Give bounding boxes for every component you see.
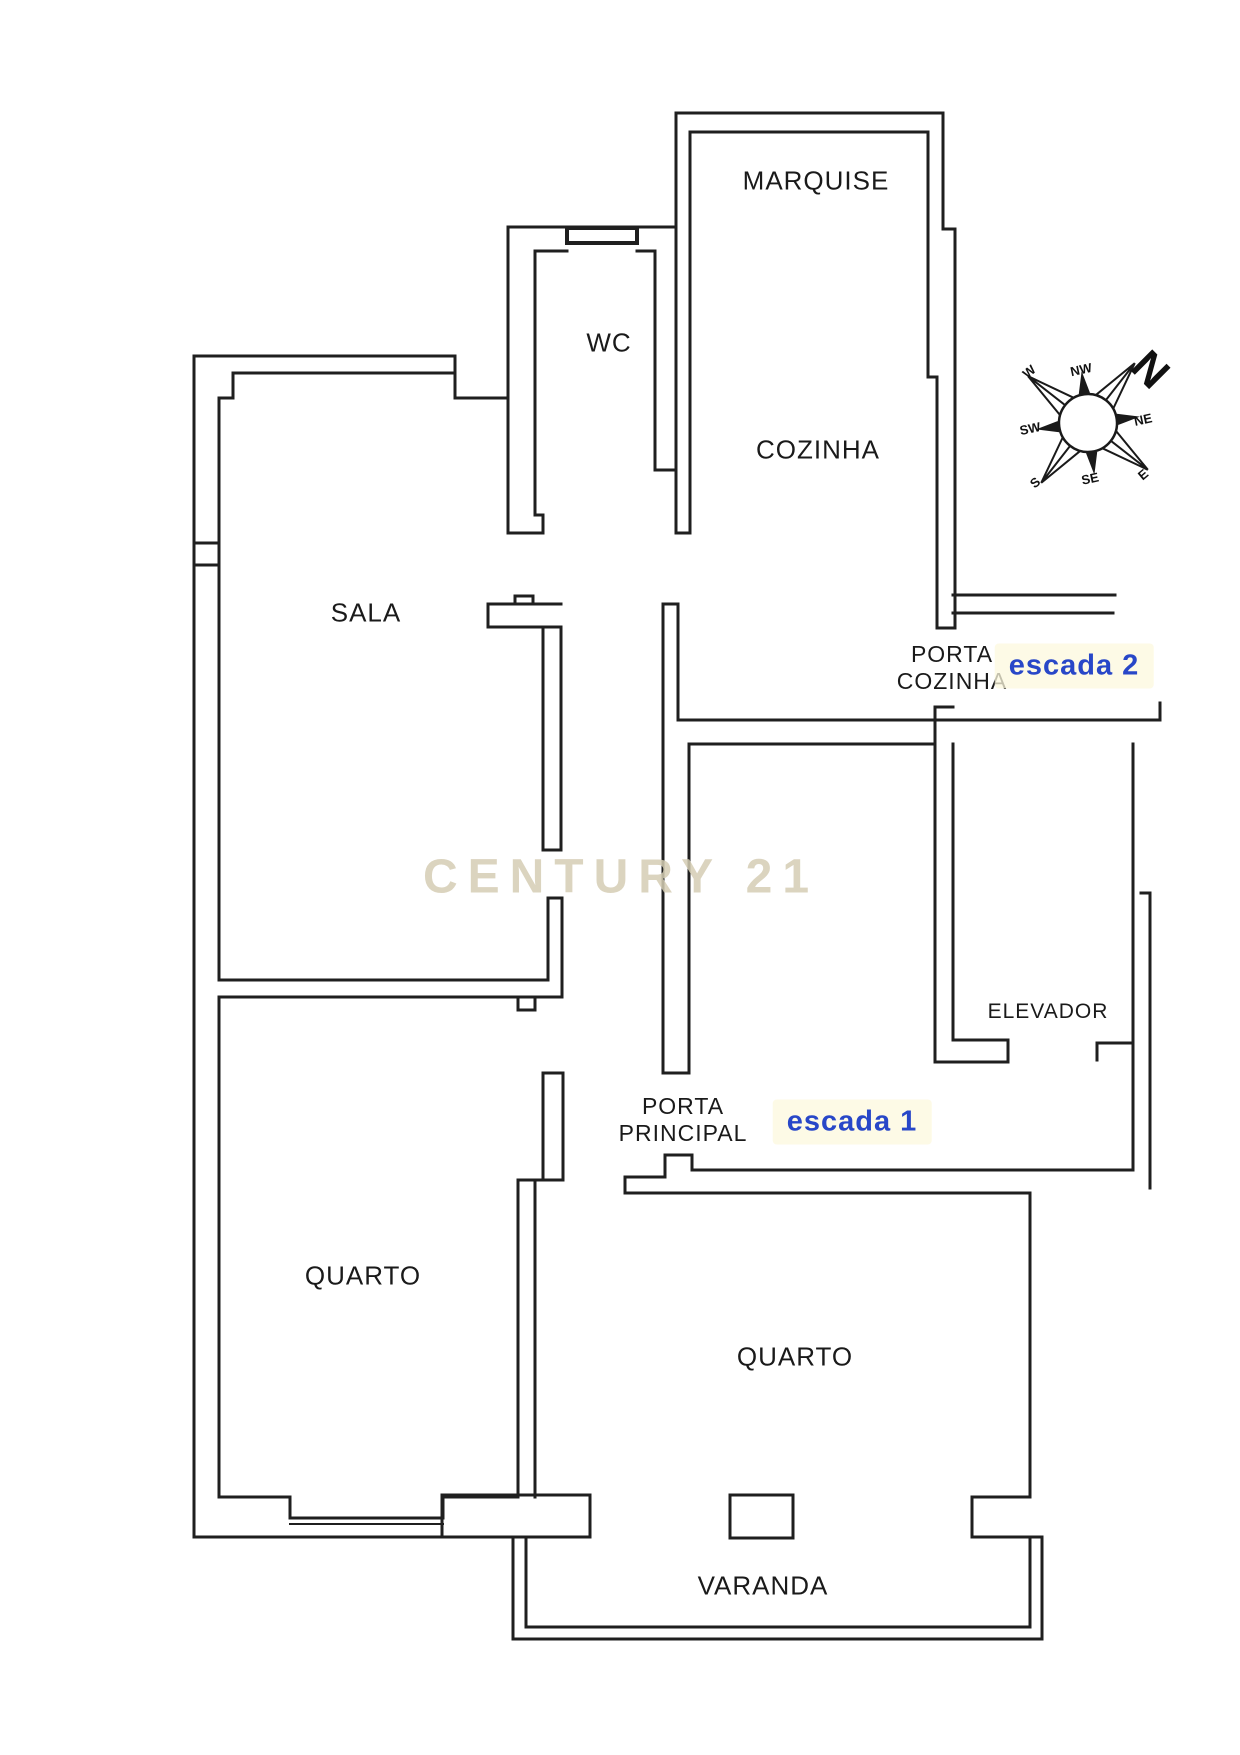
compass-east-label: E — [1135, 466, 1152, 483]
stairs-label-escada2: escada 2 — [995, 644, 1154, 689]
compass-nw-label: NW — [1069, 360, 1094, 379]
compass-circle — [1047, 382, 1128, 463]
compass-west-label: W — [1020, 361, 1040, 381]
door-label-porta-cozinha-line2: COZINHA — [897, 668, 1008, 694]
door-label-porta-cozinha: PORTA COZINHA — [897, 641, 1008, 695]
floorplan-page: N NW W SW S SE E NE CENTURY 21 MARQUISE … — [0, 0, 1240, 1755]
wall-wc — [508, 227, 676, 533]
door-label-porta-principal-line1: PORTA — [642, 1093, 724, 1119]
compass-se-label: SE — [1080, 469, 1100, 487]
varanda-pillar — [730, 1495, 793, 1538]
century21-watermark: CENTURY 21 — [423, 850, 819, 905]
stairs-label-escada1: escada 1 — [773, 1100, 932, 1145]
room-label-quarto-right: QUARTO — [737, 1342, 853, 1373]
room-label-marquise: MARQUISE — [743, 166, 890, 197]
wall-sala — [194, 356, 508, 1537]
wall-elevador — [935, 744, 1150, 1188]
compass-north-label: N — [1122, 341, 1179, 398]
door-label-porta-principal: PORTA PRINCIPAL — [619, 1093, 748, 1147]
wc-window — [567, 228, 637, 243]
wall-quartos-divider — [518, 1073, 563, 1497]
room-label-varanda: VARANDA — [698, 1571, 829, 1602]
room-label-quarto-left: QUARTO — [305, 1261, 421, 1292]
room-label-wc: WC — [586, 328, 631, 359]
wall-quarto-right — [625, 1155, 1133, 1537]
door-label-porta-cozinha-line1: PORTA — [911, 641, 993, 667]
door-label-porta-principal-line2: PRINCIPAL — [619, 1120, 748, 1146]
room-label-cozinha: COZINHA — [756, 435, 880, 466]
room-label-elevador: ELEVADOR — [988, 1000, 1109, 1024]
room-label-sala: SALA — [331, 598, 402, 629]
wall-quarto-left-bottom — [194, 1495, 590, 1537]
compass-ne-label: NE — [1133, 410, 1154, 428]
wall-sala-east — [219, 596, 562, 1010]
compass-sw-label: SW — [1018, 419, 1042, 438]
